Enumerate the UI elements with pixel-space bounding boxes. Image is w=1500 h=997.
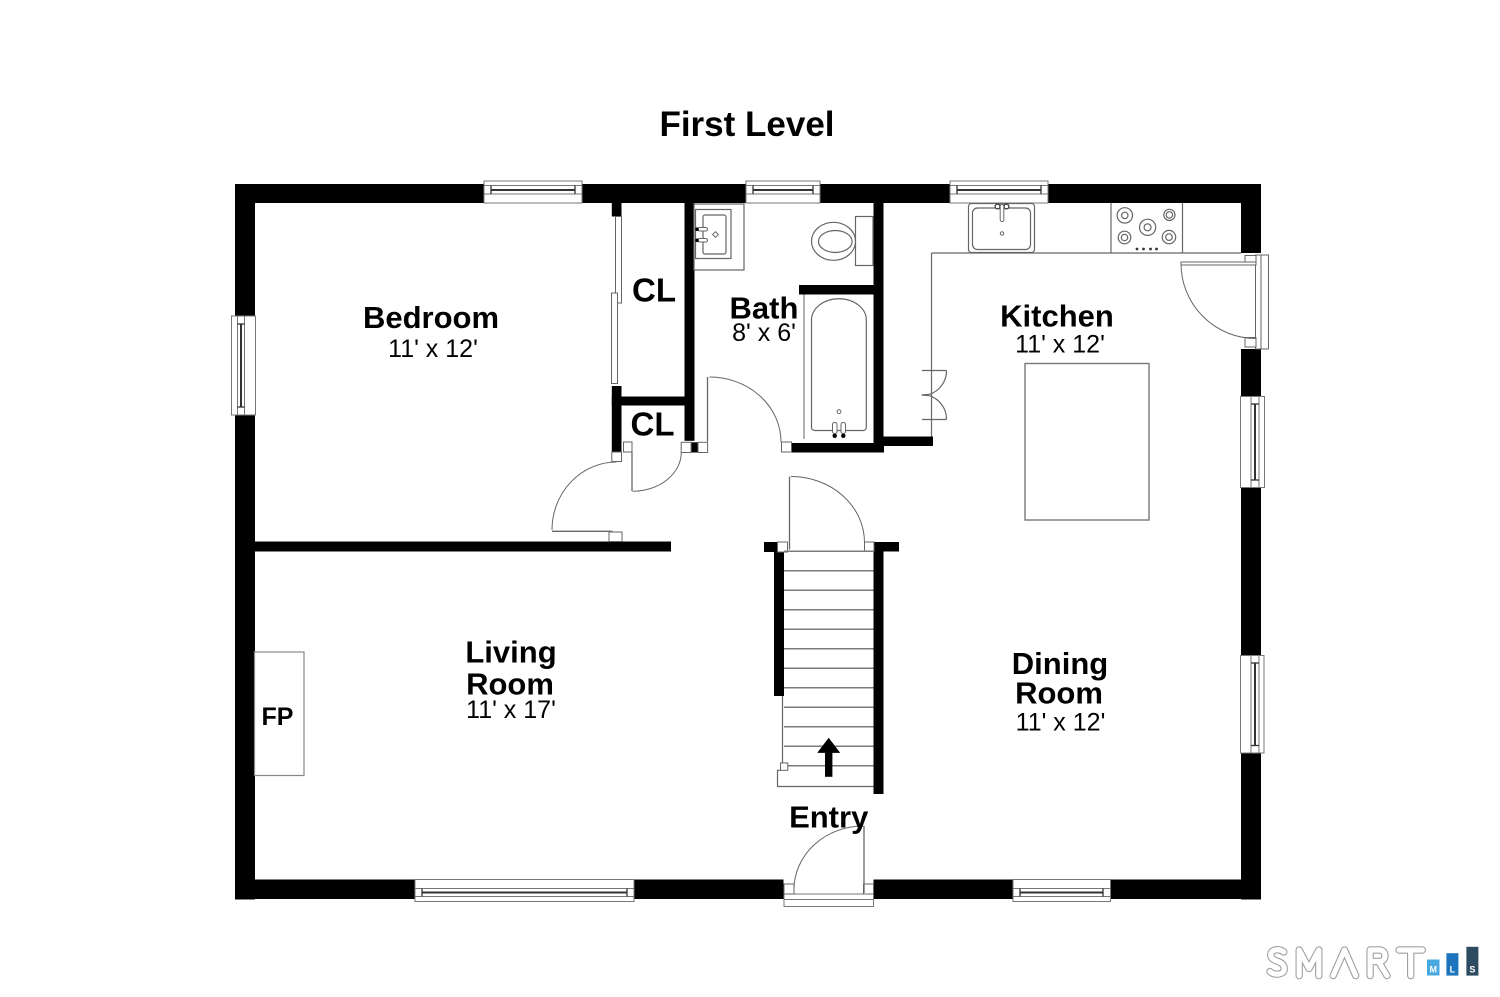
svg-text:Living: Living (465, 635, 556, 670)
svg-text:Kitchen: Kitchen (1000, 299, 1114, 334)
svg-text:11' x 12': 11' x 12' (1015, 331, 1105, 359)
svg-text:11' x 12': 11' x 12' (388, 335, 478, 363)
svg-text:8' x 6': 8' x 6' (732, 319, 796, 347)
svg-text:S: S (1469, 965, 1475, 975)
svg-text:CL: CL (632, 271, 676, 308)
svg-text:L: L (1450, 965, 1456, 975)
svg-text:11' x 17': 11' x 17' (466, 696, 556, 724)
svg-text:11' x 12': 11' x 12' (1016, 709, 1106, 737)
svg-text:Bedroom: Bedroom (363, 300, 499, 335)
svg-text:Entry: Entry (789, 800, 869, 835)
svg-text:Room: Room (1015, 676, 1103, 711)
svg-text:First Level: First Level (659, 105, 834, 144)
svg-text:CL: CL (631, 406, 675, 443)
svg-text:FP: FP (262, 703, 294, 731)
svg-text:M: M (1429, 965, 1437, 975)
